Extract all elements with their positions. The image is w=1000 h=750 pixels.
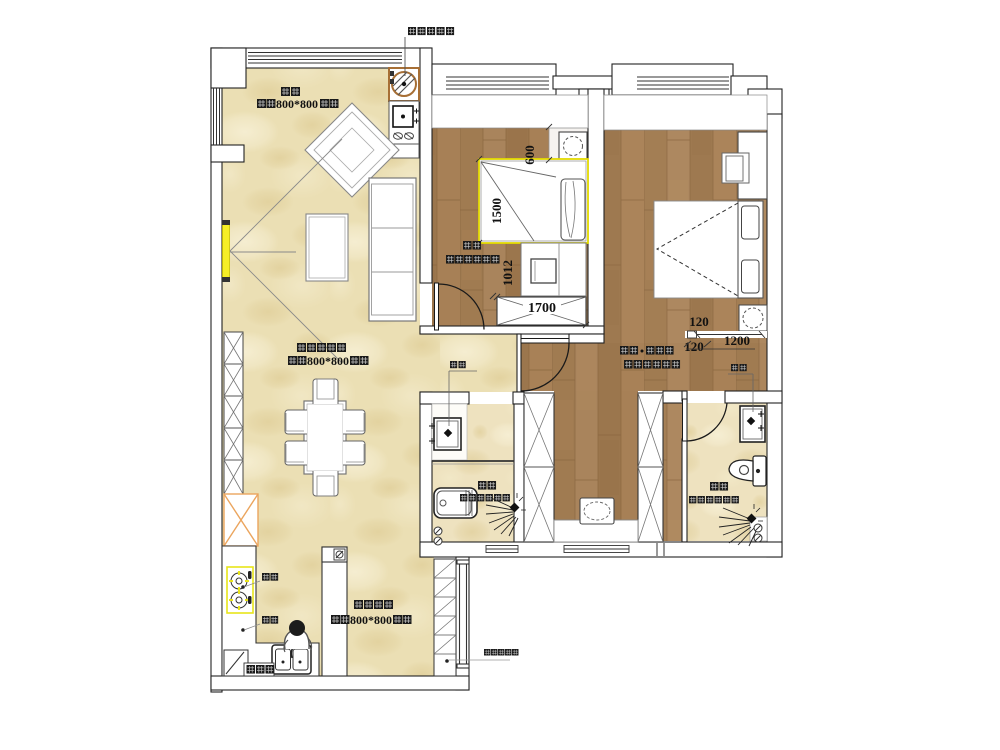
svg-text:600: 600	[522, 145, 537, 165]
svg-text:800*800: 800*800	[276, 97, 318, 111]
svg-text:120: 120	[689, 314, 709, 329]
svg-text:120: 120	[684, 339, 704, 354]
svg-text:1012: 1012	[500, 260, 515, 286]
svg-text:1700: 1700	[528, 301, 556, 316]
svg-text:800*800: 800*800	[307, 354, 349, 368]
svg-text:1500: 1500	[489, 198, 504, 224]
svg-text:800*800: 800*800	[350, 613, 392, 627]
svg-text:1200: 1200	[724, 333, 750, 348]
